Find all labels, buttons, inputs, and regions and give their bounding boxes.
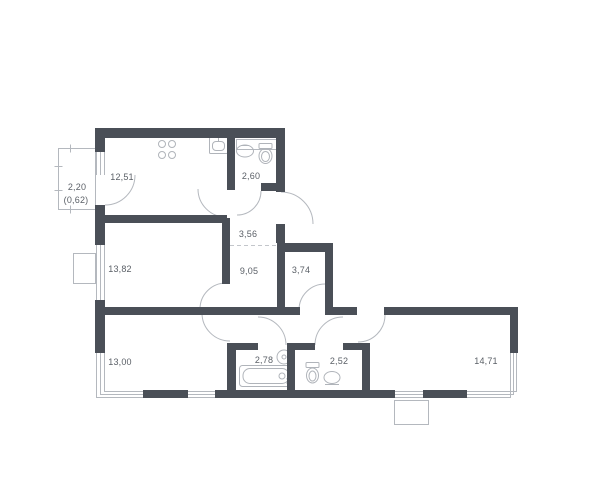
bathroom-wc-area-label: 2,52 [330, 356, 348, 366]
washbasin-oval-icon [324, 372, 340, 385]
balcony-area-label: 2,20 [68, 182, 86, 192]
door-arcs [105, 175, 385, 345]
bedroom-left-door-arc [200, 283, 226, 309]
ac-unit-box [74, 254, 429, 425]
living-room-door-arc [358, 315, 385, 342]
floor-plan: 2,20 (0,62) 12,51 2,60 3,56 9,05 3,74 13… [0, 0, 610, 480]
hall-lower-area-label: 9,05 [240, 266, 258, 276]
bathroom-bathtub-area-label: 2,78 [255, 355, 273, 365]
kitchen-door-arc [198, 189, 226, 217]
stove-icon [159, 141, 176, 159]
wardrobe-door-arc [299, 284, 325, 310]
bedroom-bottom-door-arc [202, 313, 230, 341]
kitchen-sink-icon [210, 138, 228, 154]
balcony-reduced-area-label: (0,62) [64, 195, 89, 205]
bathroom-top-door-arc [237, 191, 261, 215]
floor-plan-drawing [0, 0, 610, 480]
living-room-area-label: 14,71 [474, 356, 498, 366]
bedroom-left-area-label: 13,82 [108, 264, 132, 274]
hall-upper-area-label: 3,56 [239, 229, 257, 239]
bathtub-icon [240, 366, 293, 387]
kitchen-area-label: 12,51 [110, 172, 134, 182]
bathroom-bathtub-door-arc [258, 317, 286, 345]
bedroom-bottom-area-label: 13,00 [108, 357, 132, 367]
walls [95, 128, 518, 398]
wardrobe-area-label: 3,74 [292, 265, 310, 275]
entrance-door-arc [281, 192, 313, 224]
bathroom-top-area-label: 2,60 [242, 171, 260, 181]
window-glazing [96, 152, 517, 398]
toilet-icon-2 [306, 363, 319, 384]
bathroom-wc-door-arc [315, 317, 343, 345]
